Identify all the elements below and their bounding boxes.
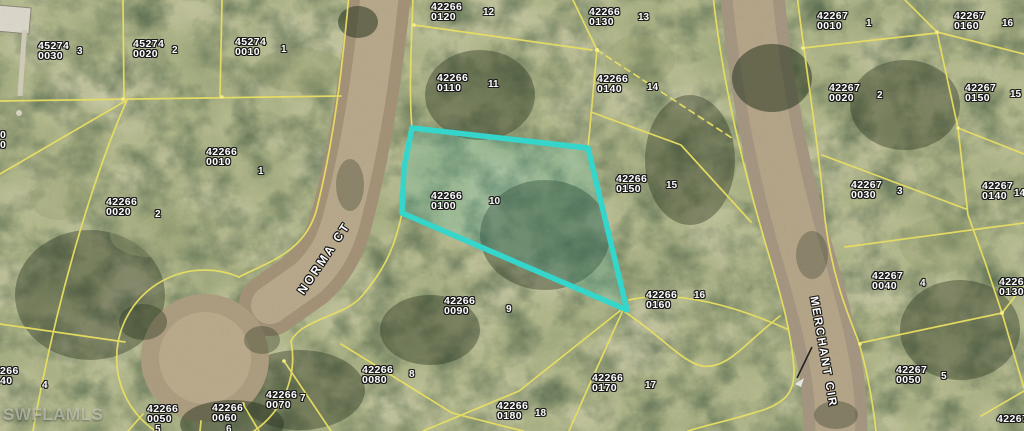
parcel-label: 42267 0140 — [982, 181, 1013, 201]
parcel-label: 42266 0180 — [497, 401, 528, 421]
lot-number: 16 — [1002, 18, 1013, 29]
aerial-parcel-map: 45274 003045274 002045274 001042266 0010… — [0, 0, 1024, 431]
parcel-label: 42267 0160 — [954, 11, 985, 31]
lot-number: 2 — [172, 45, 178, 56]
parcel-label: 42266 0110 — [437, 73, 468, 93]
lot-number: 7 — [300, 393, 306, 404]
parcel-label: 42266 0140 — [597, 74, 628, 94]
parcel-label: 42267 0150 — [965, 83, 996, 103]
parcel-label: 42267 0040 — [872, 271, 903, 291]
lot-number: 9 — [506, 304, 512, 315]
parcel-label: 42266 0100 — [431, 191, 462, 211]
lot-number: 6 — [226, 424, 232, 431]
parcel-label: 45274 0010 — [235, 37, 266, 57]
parcel-label: 42266 0090 — [444, 296, 475, 316]
lot-number: 12 — [483, 7, 494, 18]
image-grain — [0, 0, 1024, 431]
lot-number: 14 — [1014, 188, 1024, 199]
parcel-label: 42266 0050 — [147, 404, 178, 424]
watermark: SWFLAMLS — [3, 405, 103, 425]
lot-number: 4 — [42, 380, 48, 391]
lot-number: 5 — [941, 371, 947, 382]
parcel-label: 42267 0010 — [817, 11, 848, 31]
parcel-label: 42266 0130 — [589, 7, 620, 27]
lot-number: 18 — [535, 408, 546, 419]
lot-number: 15 — [666, 180, 677, 191]
lot-number: 2 — [155, 209, 161, 220]
lot-number: 2 — [877, 90, 883, 101]
parcel-label: 42267 0020 — [829, 83, 860, 103]
parcel-label: 45274 0030 — [38, 41, 69, 61]
lot-number: 1 — [866, 18, 872, 29]
parcel-label: 42266 0070 — [266, 390, 297, 410]
lot-number: 13 — [638, 12, 649, 23]
lot-number: 1 — [258, 166, 264, 177]
lot-number: 3 — [77, 46, 83, 57]
parcel-label: 42266 0060 — [212, 403, 243, 423]
lot-number: 14 — [647, 82, 658, 93]
parcel-label: 42267 0050 — [896, 365, 927, 385]
lot-number: 10 — [489, 196, 500, 207]
lot-number: 3 — [897, 186, 903, 197]
lot-number: 17 — [645, 380, 656, 391]
lot-number: 15 — [1010, 89, 1021, 100]
lot-number: 8 — [409, 369, 415, 380]
lot-number: 4 — [920, 278, 926, 289]
satellite-imagery — [0, 0, 1024, 431]
lot-number: 1 — [281, 44, 287, 55]
parcel-label: 42267 — [997, 414, 1024, 424]
parcel-label: 42266 0020 — [106, 197, 137, 217]
lot-number: 16 — [694, 290, 705, 301]
parcel-label: 42266 0170 — [592, 373, 623, 393]
parcel-label: 45274 0020 — [133, 39, 164, 59]
lot-number: 5 — [155, 424, 161, 431]
parcel-label: 42267 0030 — [851, 180, 882, 200]
parcel-label: 42267 0130 — [999, 277, 1024, 297]
parcel-label: 42266 0150 — [616, 174, 647, 194]
parcel-label: 42266 0160 — [646, 290, 677, 310]
parcel-label: 42266 0010 — [206, 147, 237, 167]
parcel-label: 42266 0080 — [362, 365, 393, 385]
parcel-label: 266 40 — [0, 366, 19, 386]
parcel-label: 42266 0120 — [431, 2, 462, 22]
parcel-label: 0 0 — [0, 130, 6, 150]
lot-number: 11 — [488, 79, 499, 90]
